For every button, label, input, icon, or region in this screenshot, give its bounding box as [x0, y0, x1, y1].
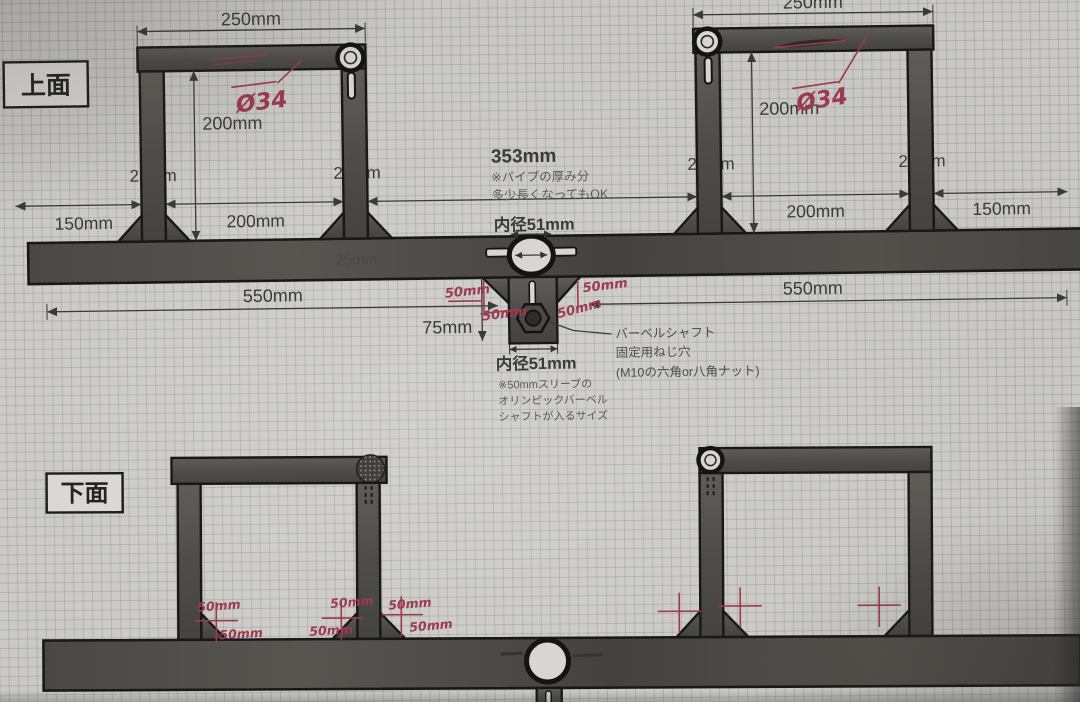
dim-250-right-label: 250mm	[783, 0, 843, 13]
bottom-view: 50mm 50mm 50mm 50mm 50mm 50mm 下面	[42, 446, 1080, 702]
hw-b50-5: 50mm	[388, 594, 432, 612]
beam-stamp-left	[500, 653, 522, 654]
dim-250-left-label: 250mm	[221, 9, 281, 30]
top-view-label-box: 上面	[4, 61, 89, 107]
dim-150-right-label: 150mm	[972, 198, 1031, 219]
hw-b50-1: 50mm	[197, 596, 241, 614]
screw-note-2: 固定用ねじ穴	[616, 344, 692, 360]
dim-550-right-line	[589, 298, 1067, 305]
left-bracket-slot	[348, 73, 355, 99]
hw-b50-2: 50mm	[219, 625, 263, 642]
left-bracket-right-leg-bottom	[357, 483, 381, 639]
right-bracket-bottom-view	[675, 447, 932, 637]
dim-200v-left-line	[194, 71, 196, 241]
beam-slit-left	[486, 248, 509, 256]
top-view-label: 上面	[21, 72, 71, 101]
sleeve-block-slot	[529, 281, 535, 305]
dim-beam25-faint: 25mm	[335, 251, 377, 269]
hw-phi34-left: Ø34	[233, 87, 289, 119]
dim-353-label: 353mm	[491, 146, 557, 168]
technical-drawing-photo: 25mm 25mm 25mm 25mm 25mm	[0, 0, 1080, 702]
screw-note-3: (M10の六角or八角ナット)	[616, 364, 760, 380]
bottom-view-label: 下面	[61, 480, 109, 507]
bottom-view-handwriting: 50mm 50mm 50mm 50mm 50mm 50mm	[195, 587, 900, 642]
right-bracket-right-leg-bottom	[909, 472, 933, 636]
bore-note-1: ※50mmスリーブの	[498, 376, 592, 391]
right-bracket-hole	[694, 28, 720, 54]
dim-550-left-label: 550mm	[243, 285, 303, 306]
dim-353-note-1: ※パイプの厚み分	[491, 169, 589, 184]
drawing-canvas: 25mm 25mm 25mm 25mm 25mm	[0, 0, 1080, 702]
center-tab-slot	[546, 691, 552, 702]
bottom-view-label-box: 下面	[47, 473, 123, 512]
right-bracket-rail	[693, 25, 933, 52]
dim-75-label: 75mm	[422, 317, 472, 338]
left-bracket-hidden-hole-hatch	[356, 455, 384, 483]
left-bracket-rail	[137, 44, 365, 71]
dim-550-right-label: 550mm	[783, 278, 843, 299]
center-sleeve-hole-bottom	[526, 640, 568, 682]
dim-150-left-label: 150mm	[54, 213, 113, 234]
left-bracket-left-leg-bottom	[178, 484, 202, 640]
left-bracket-hole	[337, 44, 363, 70]
bore-note-2: オリンピックバーベル	[498, 393, 608, 408]
beam-stamp-right	[572, 655, 602, 656]
dim-200b-left-label: 200mm	[226, 211, 285, 232]
hw-50-2: 50mm	[582, 276, 629, 296]
dim-353-note-2: 多少長くなってもOK	[491, 187, 609, 203]
hw-b50-6: 50mm	[409, 616, 454, 635]
dim-200b-right-label: 200mm	[786, 201, 845, 222]
dim-550-left-line	[47, 306, 498, 312]
bore-bottom-label: 内径51mm	[496, 353, 577, 374]
left-bracket-left-leg	[140, 71, 166, 241]
right-bracket-left-leg-bottom	[700, 473, 724, 637]
bore-top-label: 内径51mm	[494, 214, 575, 235]
bore-bottom-arrow	[510, 349, 558, 350]
right-bracket-hole-bottom	[698, 448, 722, 472]
hw-b50-4: 50mm	[309, 621, 353, 638]
bore-note-3: シャフトが入るサイズ	[498, 408, 608, 424]
dim-200v-right-line	[751, 52, 754, 233]
hw-50-3: 50mm	[556, 296, 604, 322]
screw-note-1: バーベルシャフト	[615, 326, 715, 341]
top-view: 25mm 25mm 25mm 25mm 25mm	[3, 0, 1080, 430]
right-bracket-right-leg	[907, 50, 934, 231]
right-bracket-rail-bottom	[699, 447, 931, 473]
hw-phi34-right: Ø34	[793, 83, 850, 117]
red-cross-6	[858, 587, 900, 626]
left-bracket-rail-bottom	[171, 457, 386, 484]
beam-slit-right	[553, 247, 576, 255]
right-bracket-slot	[705, 58, 712, 84]
